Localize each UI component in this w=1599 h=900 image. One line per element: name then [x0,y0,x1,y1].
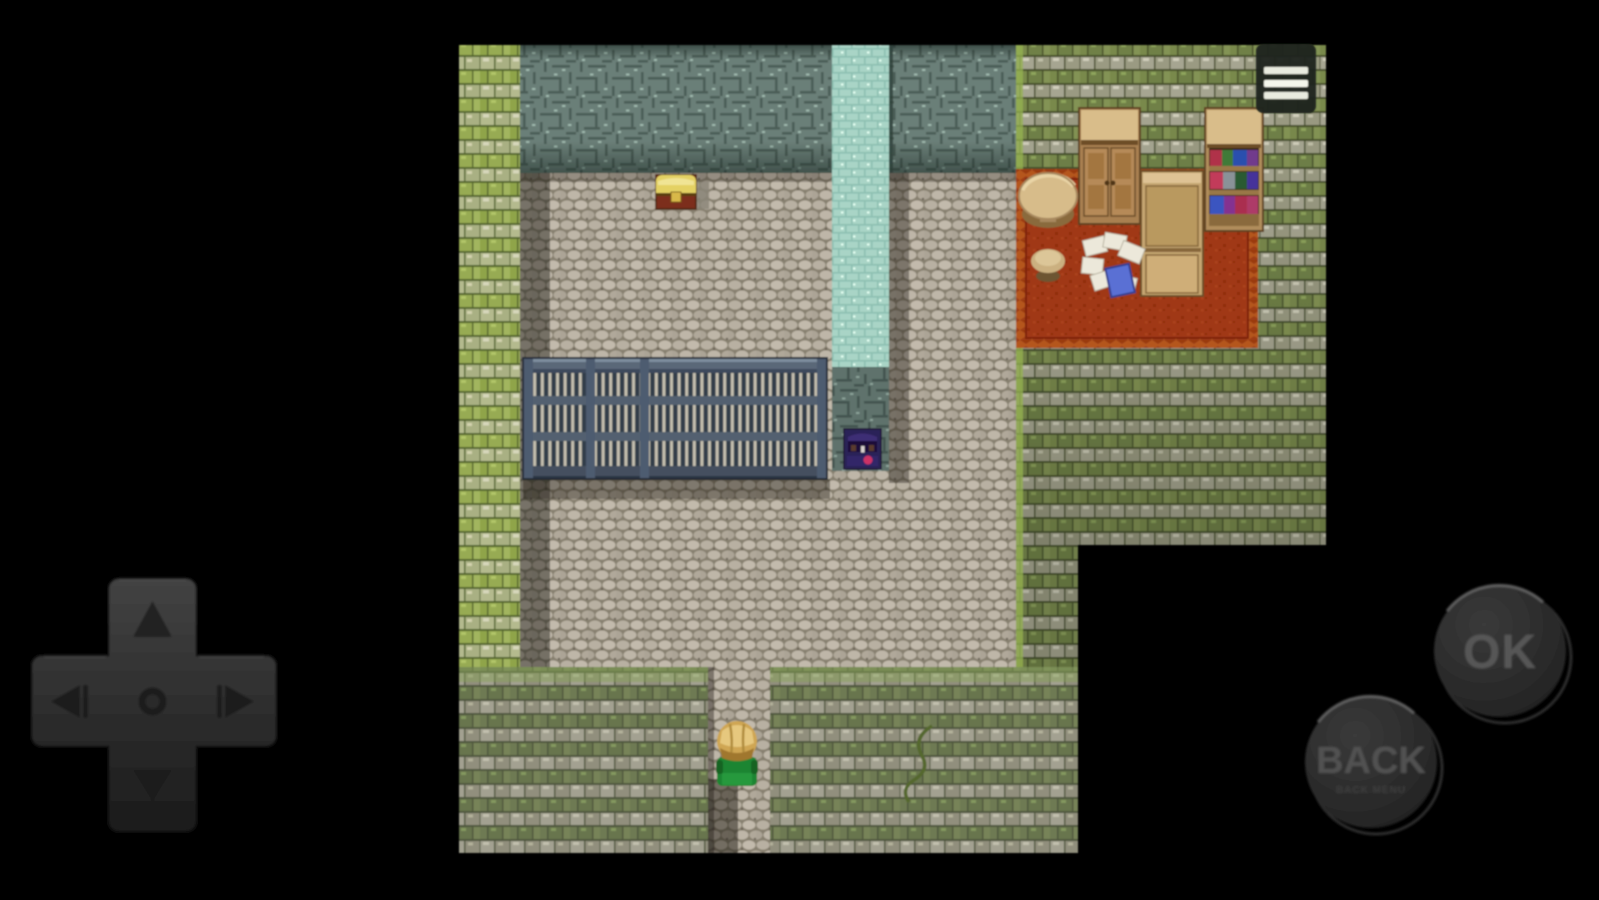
svg-text:BACK MENU: BACK MENU [1336,785,1406,796]
svg-text:OK: OK [1463,626,1537,679]
svg-text:BACK: BACK [1316,740,1426,782]
